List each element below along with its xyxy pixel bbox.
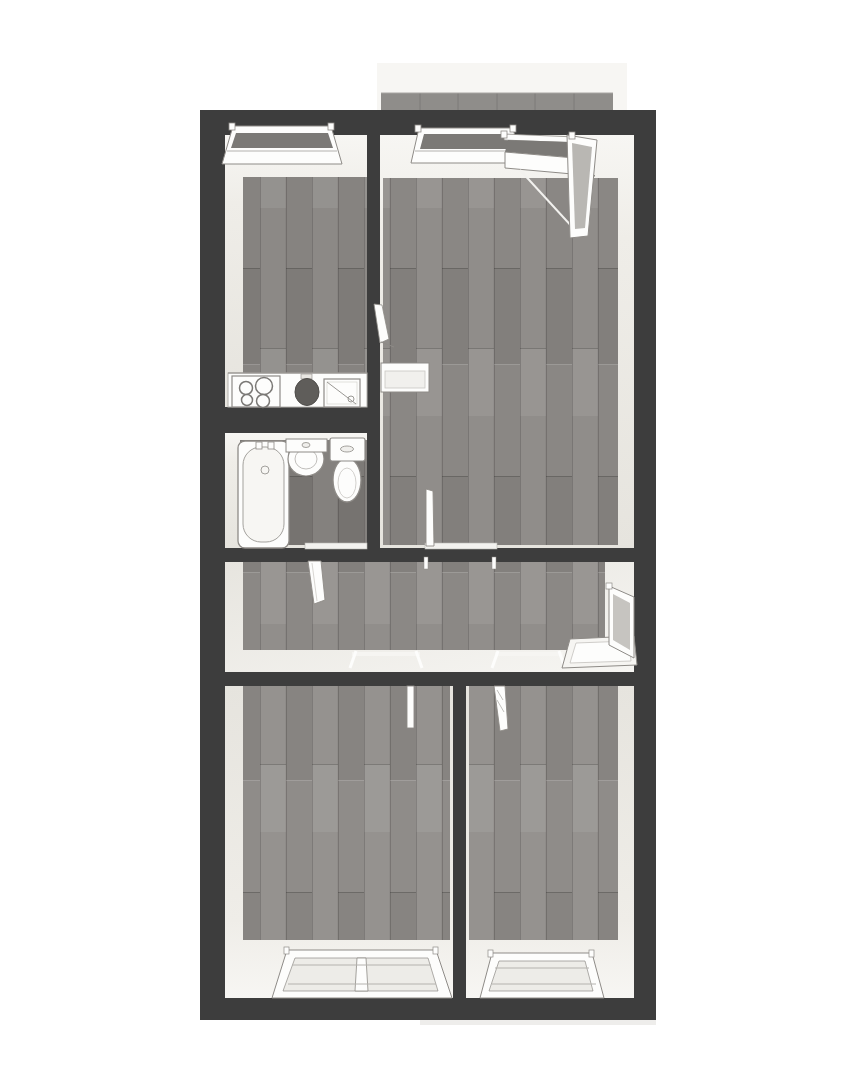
bathroom-door-threshold: [305, 543, 367, 549]
balcony: [377, 63, 627, 110]
living-door-leaf: [426, 489, 434, 546]
bathtub-faucet: [256, 442, 262, 449]
living-door-jamb: [492, 557, 496, 569]
floor-plan-canvas: [0, 0, 856, 1080]
wall-kitchen-living: [367, 135, 380, 562]
hallway-floor-texture: [243, 562, 605, 650]
sink-drainer: [324, 379, 360, 407]
toilet-flush-button: [341, 446, 354, 452]
bathtub-faucet: [268, 442, 274, 449]
window-post: [229, 123, 235, 130]
window-post: [501, 131, 507, 138]
building-shadow: [420, 1020, 656, 1025]
entrance-door-hinge-post: [606, 583, 612, 589]
wall-bottom: [200, 998, 656, 1020]
window-post: [569, 132, 575, 139]
bedroom-right-window: [480, 950, 604, 998]
living-door-jamb: [424, 557, 428, 569]
wall-hallway-bottom: [225, 672, 634, 686]
window-glass: [489, 961, 593, 991]
window-post: [589, 950, 594, 957]
window-post: [415, 125, 421, 132]
bedroom-left-window: [272, 947, 452, 998]
bathtub-interior: [243, 447, 284, 542]
kitchen-door-slab-face: [385, 371, 425, 388]
washbasin-faucet: [302, 443, 310, 448]
bedroom-left-door-leaf: [407, 686, 414, 728]
wall-bedrooms-divider: [453, 686, 466, 998]
wall-hallway-top: [225, 548, 634, 562]
wall-kitchen-bathroom: [225, 407, 367, 433]
sink-basin: [295, 379, 319, 406]
window-glass: [231, 133, 333, 148]
living-door-threshold: [425, 543, 497, 549]
window-post: [510, 125, 516, 132]
window-post: [284, 947, 289, 954]
bedroom-right-threshold: [495, 652, 563, 656]
window-post: [433, 947, 438, 954]
window-glass: [420, 134, 512, 149]
floor-plan-page: [0, 0, 856, 1080]
kitchen-floor-texture: [243, 177, 367, 373]
window-post: [328, 123, 334, 130]
wall-right: [634, 110, 656, 1020]
bedroom-left-threshold: [352, 652, 420, 656]
bedroom-right-floor-texture: [469, 686, 618, 940]
toilet-bowl: [333, 458, 361, 502]
wall-left: [200, 110, 225, 1020]
window-post: [488, 950, 493, 957]
kitchen-window: [222, 123, 342, 164]
window-mullion: [355, 958, 368, 991]
bedroom-left-floor-texture: [243, 686, 450, 940]
stove: [232, 376, 280, 408]
bathtub: [238, 441, 289, 548]
